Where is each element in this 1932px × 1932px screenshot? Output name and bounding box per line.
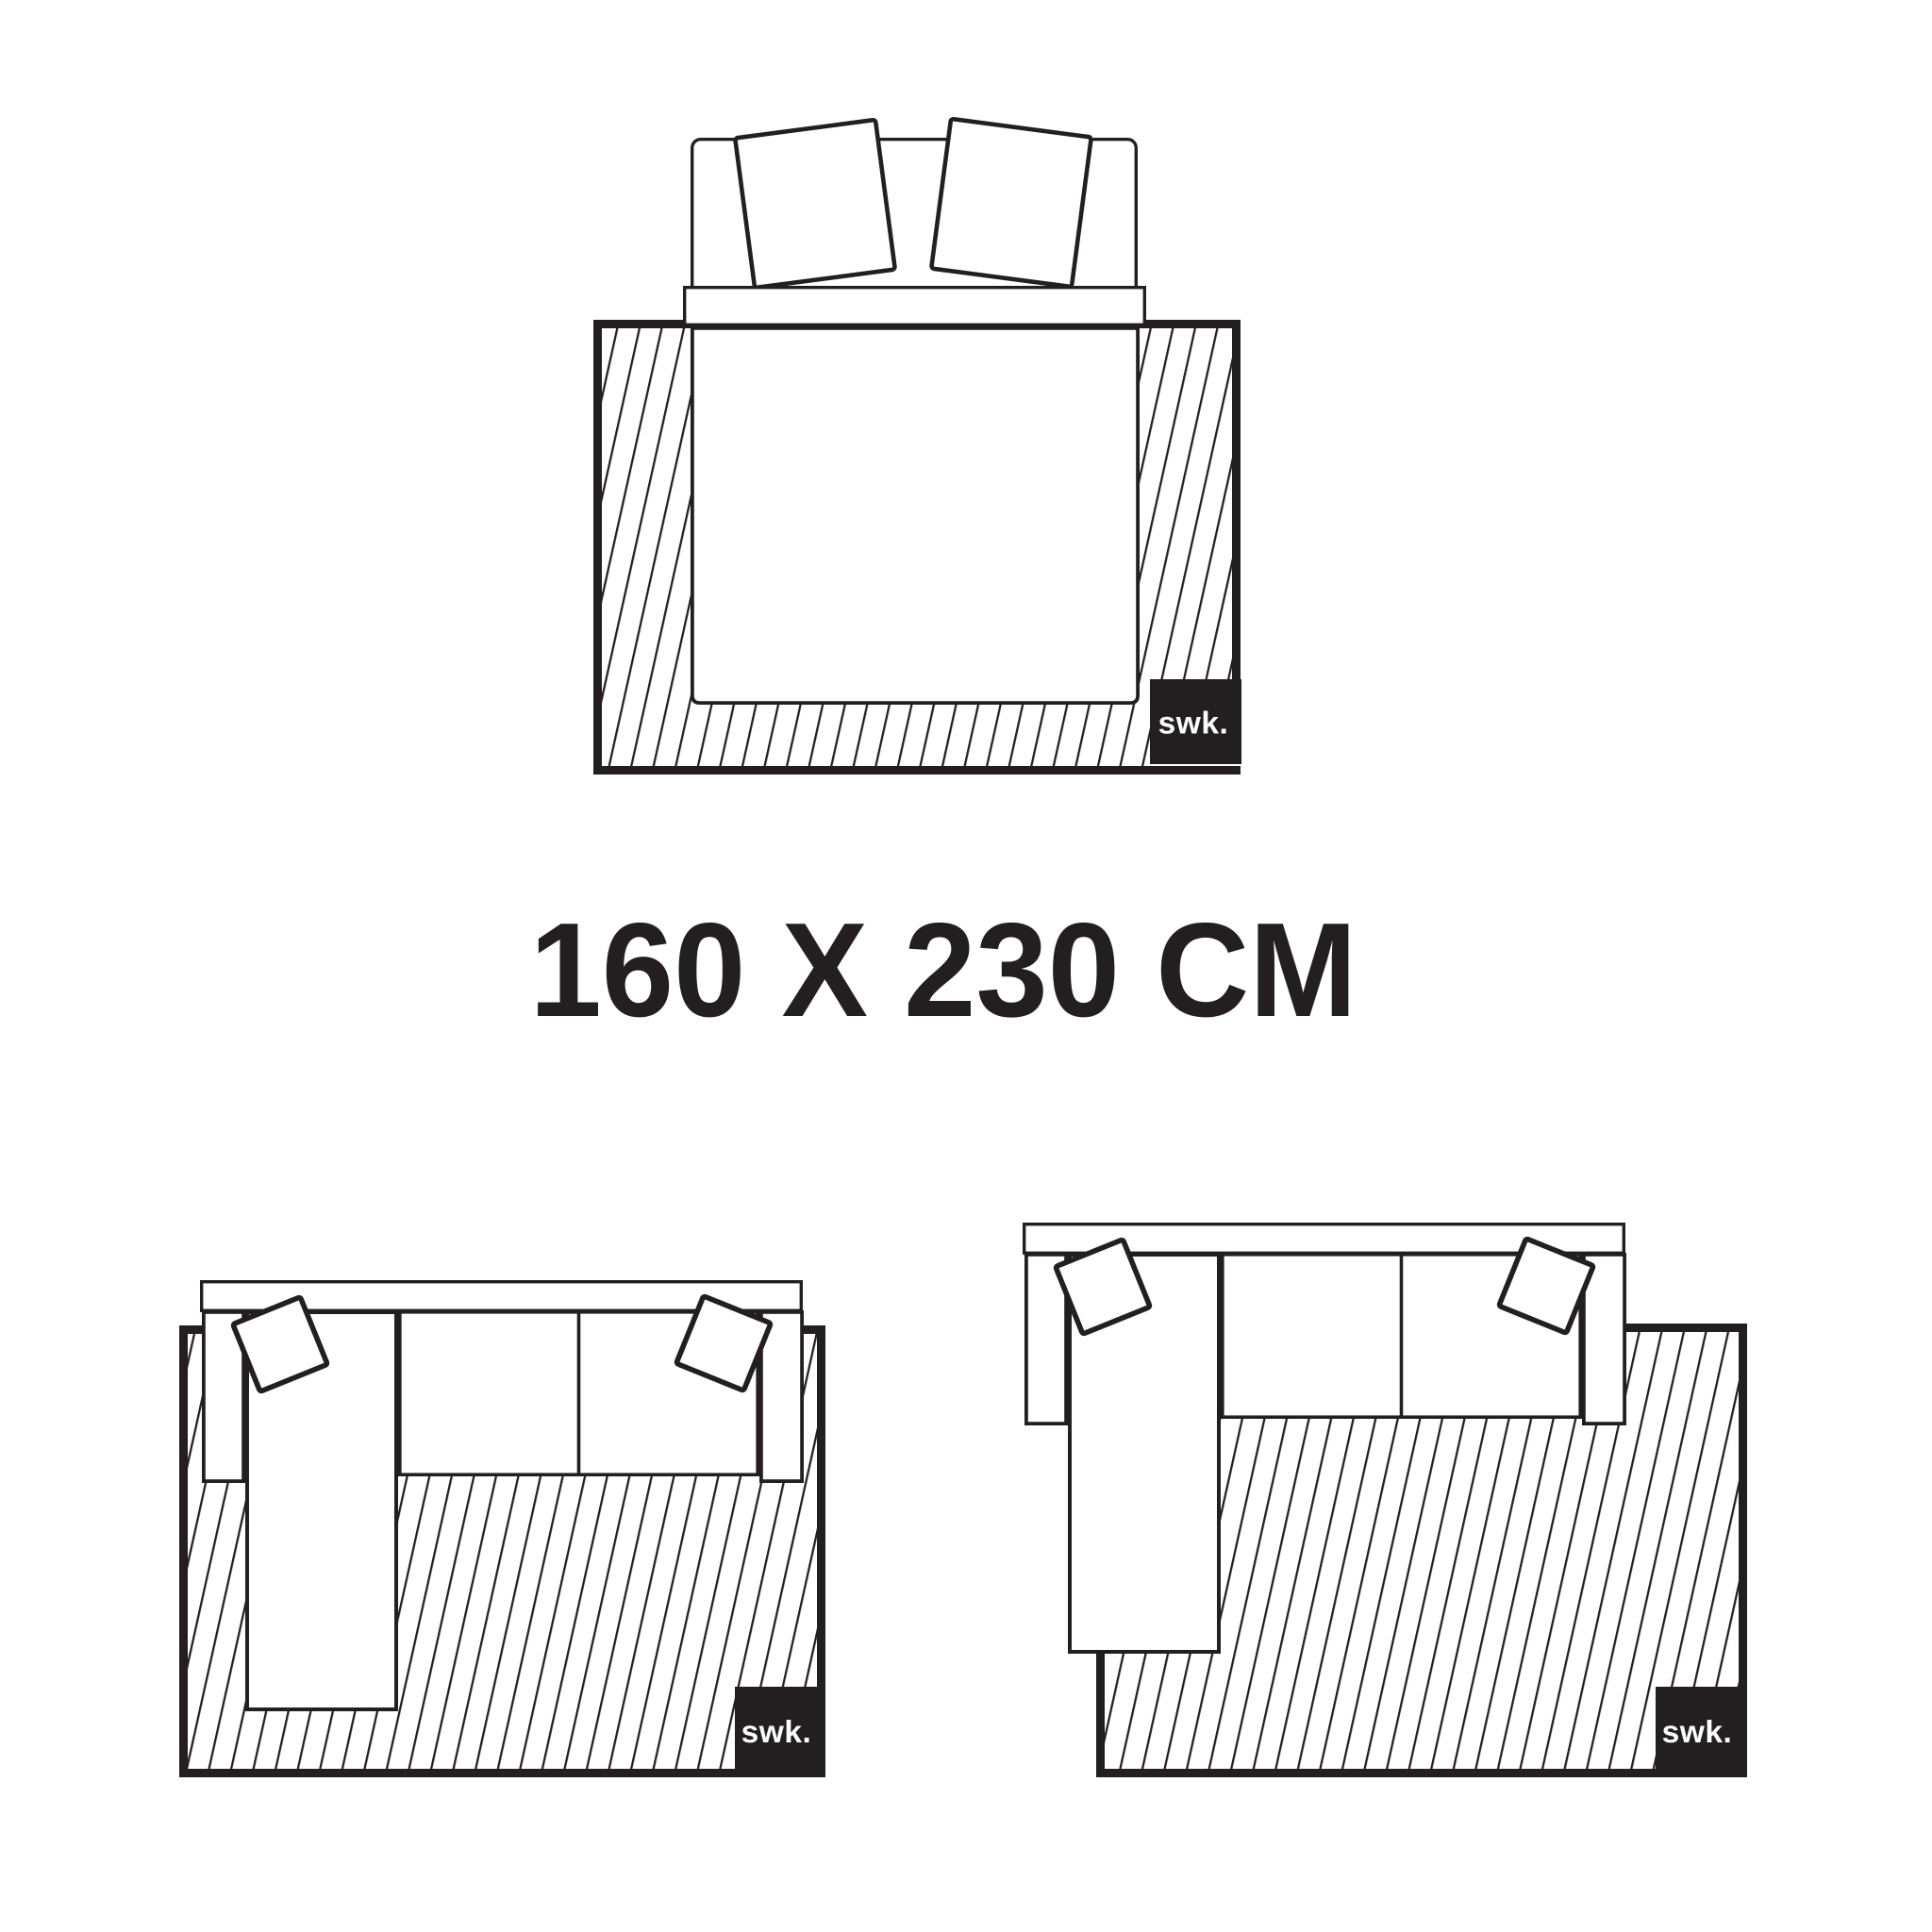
svg-text:swk.: swk. [1662,1715,1733,1750]
svg-text:swk.: swk. [1158,707,1229,741]
svg-text:160 X 230 CM: 160 X 230 CM [530,895,1357,1045]
svg-text:swk.: swk. [741,1715,812,1750]
